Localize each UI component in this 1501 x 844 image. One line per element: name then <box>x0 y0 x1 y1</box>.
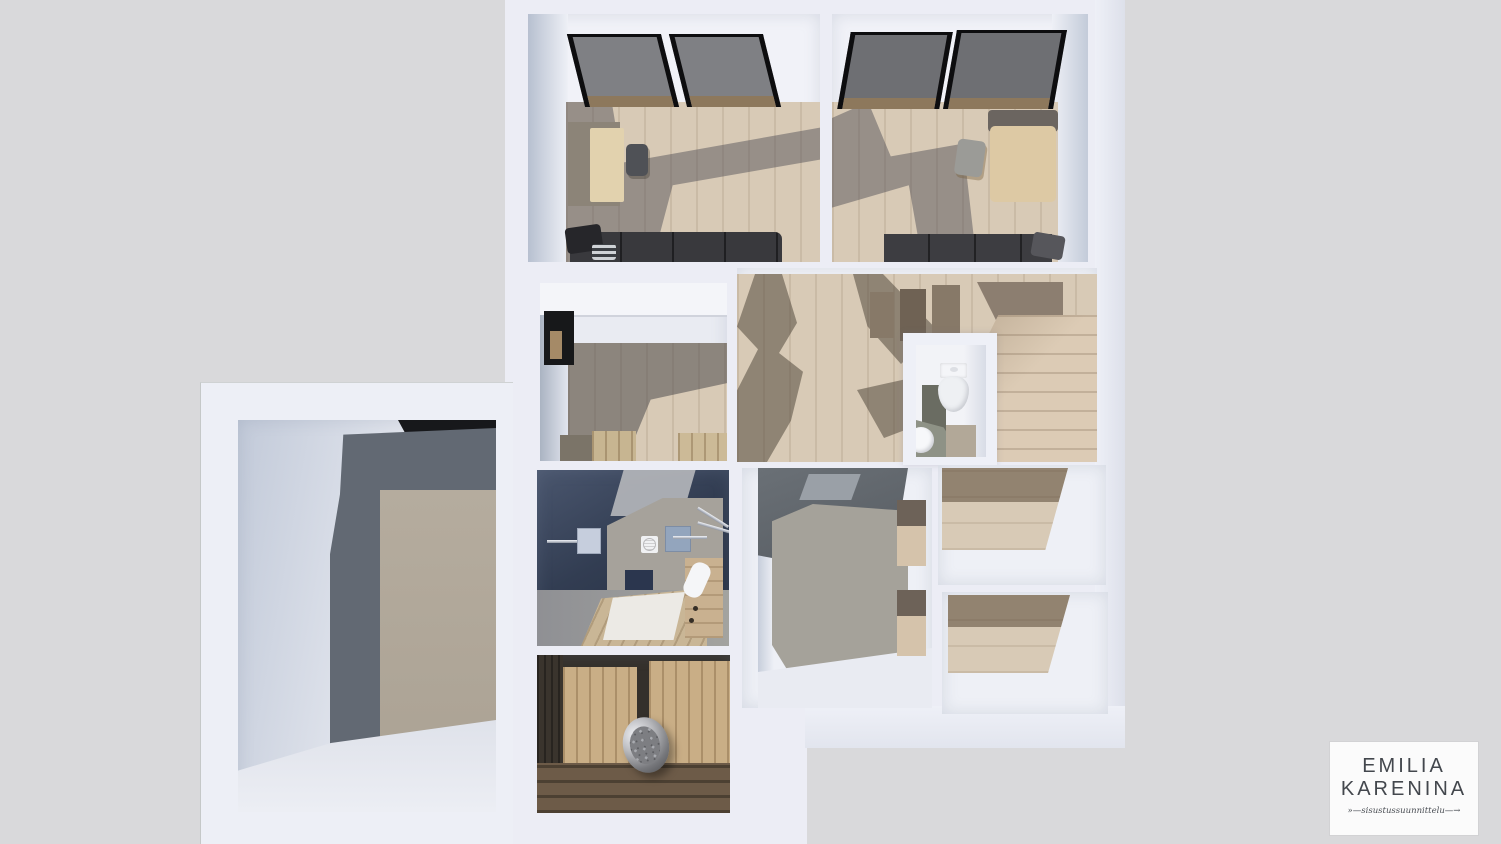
skylight-exterior-strip <box>842 98 936 109</box>
skylight-window-icon <box>567 34 679 107</box>
striped-pillow <box>592 244 616 260</box>
doorway-niche <box>897 500 926 566</box>
bedroom-left-wallface <box>528 14 568 262</box>
closet-window-exterior <box>550 331 562 359</box>
vent-grille-icon <box>641 536 658 553</box>
shower-panel-right <box>665 526 691 552</box>
skylight-window-icon <box>943 30 1067 109</box>
skylight-exterior-strip <box>689 96 776 107</box>
doorway-niche <box>897 590 926 656</box>
doorway-niche-dark-band <box>897 590 926 616</box>
storage-upper-dark-band <box>942 468 1068 502</box>
room-bedroom-right <box>832 14 1088 262</box>
wc-counter <box>946 425 976 457</box>
wc-enclosure-walls <box>903 333 997 465</box>
wardrobe-cabinet <box>592 431 636 461</box>
utility-floor <box>772 504 908 676</box>
sauna-floor <box>537 763 730 813</box>
shower-panel-left <box>577 528 601 554</box>
room-wc <box>916 345 986 457</box>
room-storage-lower <box>942 592 1108 714</box>
office-chair <box>626 144 648 176</box>
staircase-upper-tread <box>870 292 894 338</box>
brand-tagline: »—sisustussuunnittelu—→ <box>1330 806 1478 816</box>
storage-lower-dark-band <box>948 595 1070 627</box>
room-bedroom-left <box>528 14 820 262</box>
room-sauna <box>537 655 730 813</box>
brand-name-line1: EMILIA <box>1330 755 1478 778</box>
closet-window-icon <box>544 311 574 365</box>
office-chair <box>954 138 987 178</box>
room-shower <box>537 470 729 646</box>
logo-card: EMILIA KARENINA »—sisustussuunnittelu—→ <box>1330 742 1478 835</box>
room-utility <box>742 468 932 708</box>
hatch-lid <box>603 592 685 640</box>
brand-name-line2: KARENINA <box>1330 778 1478 801</box>
toilet-flush-button <box>950 367 958 372</box>
doorway-niche-dark-band <box>897 500 926 526</box>
desk <box>990 126 1056 202</box>
cabinet-knob <box>689 618 694 623</box>
room-annex <box>238 420 496 812</box>
vent-circle <box>643 538 656 551</box>
storage-lower-wood-floor <box>948 595 1070 673</box>
skylight-window-icon <box>669 34 781 107</box>
utility-skylight-lightpatch <box>799 474 860 500</box>
skylight-exterior-strip <box>587 96 674 107</box>
wardrobe-cabinet <box>678 433 727 461</box>
sauna-heater-stones <box>626 724 663 767</box>
annex-accent-panel <box>380 490 496 752</box>
skylight-exterior-strip <box>948 98 1050 109</box>
cabinet-knob <box>693 606 698 611</box>
room-storage-upper <box>938 465 1106 585</box>
shower-rail-right <box>673 536 707 539</box>
storage-upper-wood-floor <box>942 468 1068 550</box>
skylight-window-icon <box>837 32 953 109</box>
shower-rail-left <box>547 540 579 543</box>
room-walk-in-closet <box>540 283 727 461</box>
desk <box>590 128 624 202</box>
render-canvas: EMILIA KARENINA »—sisustussuunnittelu—→ <box>0 0 1501 844</box>
bed <box>884 234 1052 262</box>
